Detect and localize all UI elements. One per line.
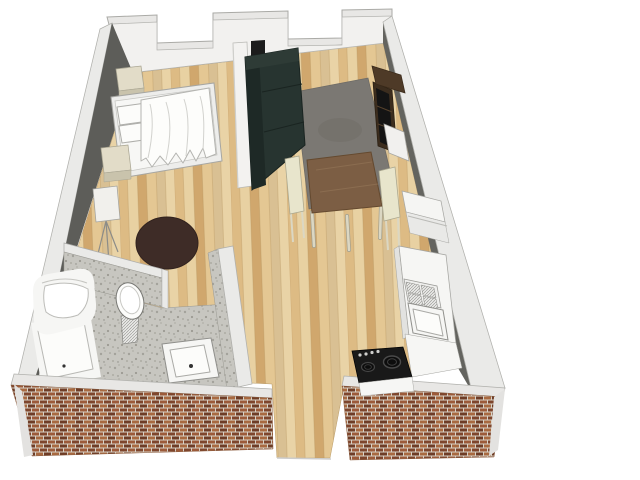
floor-plan-svg	[0, 0, 640, 480]
entrance-threshold	[277, 458, 331, 459]
cooktop	[352, 347, 414, 396]
washbasin-bowl	[170, 345, 210, 377]
front-walls	[11, 374, 505, 460]
nightstand-top	[101, 145, 131, 173]
nightstand-top	[116, 66, 144, 91]
floor-plan-render	[0, 0, 640, 480]
cooktop-surface	[352, 347, 412, 383]
area-rug-shading	[318, 118, 362, 142]
washbasin-drain	[189, 364, 193, 368]
floor-lamp-shade	[93, 186, 120, 222]
bathtub-drain	[62, 364, 65, 367]
dining-table-top	[307, 152, 382, 213]
burner-large	[384, 356, 401, 368]
washbasin	[162, 338, 219, 383]
front-left-wall	[11, 374, 273, 457]
round-rug	[136, 217, 198, 269]
front-right-brick	[342, 386, 503, 460]
bathroom-north-wall-end	[162, 269, 168, 309]
burner-small	[362, 363, 375, 372]
